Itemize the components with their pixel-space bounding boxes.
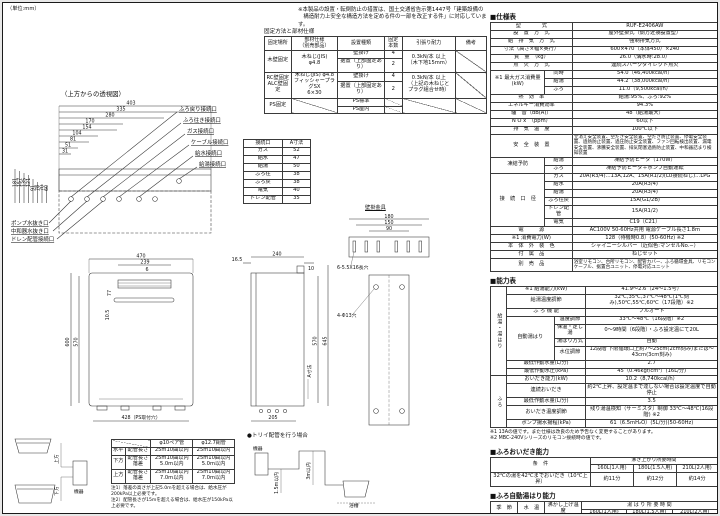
oidaki-title: ■ふろおいだき能力 — [490, 446, 718, 456]
table-cell: 最低作動水量(L/分) — [506, 398, 585, 406]
table-cell: ※1 給湯能力(kW) — [506, 286, 585, 294]
oidaki-table-grid: 条 件沸き上がり所要時間160L(1人用)180L(1.5人用)210L(2人用… — [490, 457, 718, 487]
fixing-section: 固定方法と部材仕様 固定場所部材仕様 （別売部品）設置種類固定本数引張り耐力備考… — [264, 29, 487, 114]
torii-diagram: 3m以内 1.5m以内 機器 浴槽 — [247, 441, 377, 511]
a-dimension-table-grid: 接続口A寸法ガス52給水47給湯50ふろ往38ふろ戻38電気40ドレン配管35 — [243, 139, 311, 204]
dim-label: A寸法 — [306, 364, 313, 377]
table-cell: ガス — [244, 147, 283, 155]
table-cell: 10.2（8,740kcal/h） — [586, 376, 718, 384]
table-cell: ふろ — [545, 86, 572, 94]
table-cell: φ10ペア管 — [151, 440, 193, 448]
port-label: 給湯接続口 — [199, 160, 226, 168]
table-cell: 2 — [384, 58, 402, 72]
a-dimension-table: 接続口A寸法ガス52給水47給湯50ふろ往38ふろ戻38電気40ドレン配管35 — [243, 139, 311, 204]
table-cell: 質 量 （kg） — [491, 54, 573, 62]
yuhari-table: 季 節水 温沸かし上げ温度湯 は り 所 要 時 間160L(1人用)180L(… — [490, 501, 718, 514]
table-cell: 0.3kN/本 以上 （上記の木ねじと プラグ組合せ時） — [402, 72, 455, 98]
table-cell: 電 源 — [491, 227, 573, 235]
table-cell: 熱 効 率 — [491, 94, 573, 102]
table-cell: 160L(1人用) — [581, 509, 626, 514]
drain-label: ドレン配管接続口 — [11, 235, 54, 243]
table-cell: フルオート — [586, 308, 718, 316]
table-cell: 固定場所 — [265, 37, 292, 51]
table-cell: 47 — [282, 155, 310, 163]
dim-label: 570 — [313, 336, 319, 345]
capacity-table-grid: 給湯・湯はり※1 給湯能力(kW)41.9〜2.6（24〜1.5号）給湯温度調節… — [490, 286, 718, 428]
table-cell: 600×470（本体450）×240 — [572, 46, 717, 54]
table-cell: 木ねじ(JIS) φ4.8 フィッシャープラグSX 6×30 — [291, 72, 338, 98]
table-cell: 自動湯はり — [506, 316, 554, 360]
table-cell: 給湯 — [244, 163, 283, 171]
bracket-channel — [369, 275, 409, 425]
table-cell: 2 — [384, 82, 402, 98]
front-view-drawing: 470 239 6 600 570 77 10.5 428（PS取付穴） — [59, 249, 227, 435]
table-cell: 接続口 — [244, 140, 283, 148]
table-cell — [112, 440, 151, 448]
table-cell — [455, 98, 486, 114]
table-cell: 45（0.46kgf/cm²）(16L/分) — [586, 368, 718, 376]
table-cell — [402, 98, 455, 114]
torii-device-label: 機器 — [253, 445, 263, 452]
spec-title: ■仕様表 — [490, 11, 718, 21]
dim-label: 150 — [384, 220, 393, 226]
table-cell: 自動 — [586, 338, 718, 346]
table-cell: 最低作動水圧(kPa) — [506, 368, 585, 376]
table-cell: 40 — [282, 187, 310, 195]
table-cell: 騒 音（dB(A)） — [491, 110, 573, 118]
torii-dim-2: 1.5m以内 — [273, 472, 280, 494]
table-cell: 保温・足し湯 — [554, 324, 586, 338]
table-cell: 据置（上部固定あり） — [338, 82, 385, 98]
table-cell: 33℃〜48℃（16段階）※2 — [586, 316, 718, 324]
table-cell: 本 体 外 装 色 — [491, 243, 573, 251]
table-cell: ふろ往 — [244, 171, 283, 179]
table-cell: RC壁固定 ALC壁固定 — [265, 72, 292, 98]
table-cell: 32℃の湯を42℃までおいだき（10℃上昇） — [491, 473, 591, 487]
table-cell: 木ねじ(JIS) φ4.8 — [291, 50, 338, 72]
table-cell: 160L(1人用) — [590, 465, 633, 473]
table-cell: 給湯:95%、ふろ:92% — [572, 94, 717, 102]
footnote-2: ※2 MBC-240Vシリーズのリモコン接続時の値です。 — [490, 436, 718, 442]
table-cell: ふろ — [545, 165, 572, 173]
table-cell: 約11分 — [590, 473, 633, 487]
table-cell: 26.0（満水時:28.0） — [572, 54, 717, 62]
drain-label: ポンプ水抜き口 — [11, 219, 49, 227]
table-cell: 連続おいだき — [506, 384, 585, 398]
pipe-note-1: 注1）落差の高さが上記5.0mを超える場合は、給水圧が200kPa以上必要です。 — [111, 486, 235, 498]
dim-label: 154 — [82, 125, 91, 131]
table-cell: 25m10曲以内 5.0m以内 — [193, 455, 235, 469]
table-cell: 25m10曲以内 7.0m以内 — [193, 469, 235, 483]
table-cell: 上方 — [112, 469, 126, 483]
table-cell: 湯 は り 所 要 時 間 — [581, 502, 717, 510]
table-cell: 条 件 — [491, 457, 591, 473]
table-cell: 210L(2人用) — [677, 465, 718, 473]
pipe-length-table: φ10ペア管φ12.7銅管水平配管長さ25m10曲以内25m10曲以内下方配管長… — [111, 439, 235, 484]
table-cell: 連続スパークダイレクト点火 — [572, 62, 717, 70]
table-cell: 沸き上がり所要時間 — [590, 457, 717, 465]
table-cell: 湯はり方式 — [554, 338, 586, 346]
torii-dim-1: 3m以内 — [305, 462, 312, 480]
dim-label: 10.5 — [105, 310, 111, 321]
table-cell: 設 置 方 式 — [491, 30, 573, 38]
table-cell: 排 気 温 度 — [491, 126, 573, 134]
table-cell: 給湯 — [545, 78, 572, 86]
table-cell: 20A(R3/4) — [572, 181, 717, 189]
table-cell: ふろ往戻 — [545, 197, 572, 205]
table-cell: 25m10曲以内 5.0m以内 — [151, 455, 193, 469]
table-cell: ※1 最大ガス消費量 (kW) — [491, 70, 545, 94]
bath-diagram: 上方 下方 機器 — [11, 433, 107, 511]
dim-label: 403 — [126, 101, 135, 107]
dim-label: 51 — [65, 143, 71, 149]
dim-label: 31 — [62, 149, 68, 155]
dim-label: 170 — [85, 119, 94, 125]
table-cell: 下方 — [112, 455, 126, 469]
table-cell: 引張り耐力 — [402, 37, 455, 51]
fixing-title: 固定方法と部材仕様 — [264, 29, 487, 36]
table-cell: ふろ — [491, 376, 507, 428]
table-cell: 木壁固定 — [265, 50, 292, 72]
fixing-table: 固定場所部材仕様 （別売部品）設置種類固定本数引張り耐力備考木壁固定木ねじ(JI… — [264, 36, 487, 114]
table-cell: 配管長さ — [125, 447, 151, 455]
table-cell: 52 — [282, 147, 310, 155]
table-cell: 50 — [282, 163, 310, 171]
a-dimension-section: 接続口A寸法ガス52給水47給湯50ふろ往38ふろ戻38電気40ドレン配管35 — [243, 139, 311, 204]
dim-label: 570 — [74, 337, 80, 346]
table-cell: 固定本数 — [384, 37, 402, 51]
table-cell: 4 — [384, 50, 402, 58]
table-cell — [455, 72, 486, 98]
table-cell: 水平 — [112, 447, 126, 455]
dim-label: 335 — [116, 107, 125, 113]
table-cell: 同時 — [545, 70, 572, 78]
table-cell: 約14分 — [677, 473, 718, 487]
upper-tub — [15, 439, 51, 453]
table-cell: 電気 — [545, 219, 572, 227]
dim-label: 77 — [107, 290, 113, 296]
port-label: ふろ往き接続口 — [183, 116, 221, 124]
dim-label: 428（PS取付穴） — [121, 414, 160, 421]
yuhari-table-grid: 季 節水 温沸かし上げ温度湯 は り 所 要 時 間160L(1人用)180L(… — [490, 501, 718, 514]
table-cell: C19（C21） — [572, 219, 717, 227]
table-cell: おいだき能力(kW) — [506, 376, 585, 384]
drain-leader-lines — [49, 201, 103, 239]
table-cell: ガス — [545, 173, 572, 181]
table-cell: 設置種類 — [338, 37, 385, 51]
bath-down-label: 下方 — [53, 486, 60, 496]
table-cell: 給湯温度調節 — [506, 294, 585, 308]
slot-label: 6-5.5X16長穴 — [337, 264, 369, 271]
table-cell: 給水 — [244, 155, 283, 163]
table-cell: 0〜9時間（6段階）・ふろ設定温にて20L — [586, 324, 718, 338]
table-cell: 点 火 方 式 — [491, 62, 573, 70]
table-cell: 残り湯温検知（サーミスタ）制御 33℃〜48℃(16段階) ※2 — [586, 406, 718, 420]
dim-label: 10 — [308, 266, 314, 272]
table-cell: N O x （ppm） — [491, 118, 573, 126]
table-cell: 60以下 — [572, 118, 717, 126]
table-cell: 立消え安全装置、空だき安全装置、空だき防止装置、停電安全装置、過熱防止装置、過圧… — [572, 134, 717, 157]
table-cell: 壁掛け — [338, 72, 385, 81]
table-cell: RUF-E2406AW — [572, 23, 717, 31]
spec-panel: ■仕様表 型 式RUF-E2406AW設 置 方 式屋外壁掛式（側方近接設置型）… — [490, 8, 718, 509]
top-view-title: （上方からの透視図） — [61, 89, 125, 98]
slot-leader — [351, 252, 354, 265]
front-body — [89, 273, 193, 410]
table-cell: 94.3% — [572, 102, 717, 110]
table-cell: ドレン配管 — [244, 195, 283, 203]
table-cell: 11.0（9,500kcal/h） — [572, 86, 717, 94]
table-cell: ポンプ揚水揚程(kPa) — [506, 420, 585, 428]
pipe-length-table-grid: φ10ペア管φ12.7銅管水平配管長さ25m10曲以内25m10曲以内下方配管長… — [111, 439, 235, 484]
table-cell: 128（待機時0.8）(50-60Hz) ※2 — [572, 235, 717, 243]
bracket-title: 壁掛金具 — [365, 205, 386, 212]
table-cell: 35 — [282, 195, 310, 203]
dim-label: 645 — [323, 336, 329, 345]
table-cell: 54.0（46,400kcal/h） — [572, 70, 717, 78]
table-cell: 約12分 — [634, 473, 677, 487]
unit-note: （単位:mm） — [7, 6, 40, 13]
table-cell: 最低作動水量(L/分) — [506, 360, 585, 368]
table-cell: 別 売 品 — [491, 259, 573, 272]
table-cell: 部材仕様 （別売部品） — [291, 37, 338, 51]
table-cell: 給湯 — [545, 189, 572, 197]
dim-label: 16.5 — [232, 257, 243, 263]
dim-label: 205 — [268, 415, 277, 421]
table-cell: AC100V 50-60Hz共用 電源ケーブル長さ1.8m — [572, 227, 717, 235]
dim-label: 60 — [44, 185, 50, 191]
table-cell: 2.7 — [586, 360, 718, 368]
compliance-line-2: 構造耐力上安全な構造方法を定める件の一部を改正する件」に対応しています。 — [298, 14, 488, 29]
dim-label: 600 — [65, 337, 71, 346]
dim-label: 81 — [70, 137, 76, 143]
table-cell: 配管長さ 落差 — [125, 455, 151, 469]
table-cell: 型 式 — [491, 23, 573, 31]
port-label: 給水接続口 — [195, 149, 222, 157]
table-cell: 38 — [282, 171, 310, 179]
table-cell: 15A(R1/2) — [572, 205, 717, 219]
table-cell: シャイニーシルバー（近似色:マンセルNo.−） — [572, 243, 717, 251]
torii-pipe — [255, 451, 369, 497]
bracket-drawing: 180 150 90 6-5.5X16長穴 4-Φ13穴 — [335, 213, 443, 435]
capacity-title: ■能力表 — [490, 275, 718, 285]
spec-table-grid: 型 式RUF-E2406AW設 置 方 式屋外壁掛式（側方近接設置型）給 排 気… — [490, 22, 718, 272]
table-cell: 180L(1.5人用) — [627, 509, 672, 514]
dim-label: 239 — [140, 260, 149, 266]
dim-label: 104 — [72, 131, 81, 137]
dim-label: 470 — [136, 254, 145, 260]
table-cell: ねじセット — [572, 251, 717, 259]
table-cell: 0.3kN/本 以上 （木下地15mm） — [402, 50, 455, 72]
table-cell: 約2℃上昇、設定温まで達しない場合は設定温度で自動停止 — [586, 384, 718, 398]
table-cell: 寸法（高さ×幅×奥行） — [491, 46, 573, 54]
table-cell: 12段階 下限循環口上約7〜25cm(2cm刻み)または〜43cm(3cm刻み) — [586, 346, 718, 360]
drain-label: 中和器水抜き口 — [11, 227, 49, 235]
table-cell: ふ ろ 機 能 — [506, 308, 585, 316]
table-cell: 水 温 — [518, 502, 545, 514]
table-cell: 20A(R3/4)…13A,12A、15A(R1/2)(LU接続ねじ)…LPG — [572, 173, 717, 181]
front-view-dim-lines — [71, 259, 193, 421]
drawing-sheet: （単位:mm） ※本製品の設置・転倒防止の措置は、国土交通省告示第1447号「建… — [2, 2, 718, 514]
side-body — [251, 266, 308, 413]
table-cell: 61（6.5mH₂O）(5L/分)(50-60Hz) — [586, 420, 718, 428]
table-cell: 210L(2人用) — [672, 509, 717, 514]
table-cell — [384, 98, 402, 106]
table-cell: 浴室リモコン、台所リモコン、配管カバー、ふろ循環金具、リモコンケーブル、据置台ユ… — [572, 259, 717, 272]
port-label: ケーブル接続口 — [191, 138, 228, 146]
dim-label: 6 — [145, 267, 148, 273]
table-cell: 接 続 口 径 — [491, 173, 545, 227]
table-cell: 据置（上部固定あり） — [338, 58, 385, 72]
table-cell: 凍結予防ヒータ＋ポンプ自動運転 — [572, 165, 717, 173]
table-cell: 凍結予防 — [491, 157, 545, 173]
table-cell — [291, 98, 338, 114]
table-cell: 3.5 — [586, 398, 718, 406]
table-cell: ドレン配管 — [545, 205, 572, 219]
table-cell: φ12.7銅管 — [193, 440, 235, 448]
dim-label: 240 — [272, 252, 281, 258]
table-cell: 付 属 品 — [491, 251, 573, 259]
table-cell: 季 節 — [491, 502, 518, 514]
side-view-drawing: 16.5 240 10 570 645 A寸法 205 — [225, 249, 339, 435]
page: { "unit_note": "（単位:mm）", "compliance": … — [0, 0, 720, 516]
capacity-table: 給湯・湯はり※1 給湯能力(kW)41.9〜2.6（24〜1.5号）給湯温度調節… — [490, 286, 718, 428]
bath-up-label: 上方 — [53, 454, 60, 464]
table-cell: おいだき温度調節 — [506, 406, 585, 420]
lower-tub — [15, 485, 55, 503]
table-cell: 電気 — [244, 187, 283, 195]
pipe-note-2: 注2）配管長さが15mを超える場合は、給水圧が150kPa以上必要です。 — [111, 498, 235, 510]
table-cell: 25m10曲以内 — [151, 447, 193, 455]
table-cell: 備考 — [455, 37, 486, 51]
table-cell: 180L(1.5人用) — [634, 465, 677, 473]
table-cell: PS標準 — [338, 98, 385, 106]
bracket-plate — [349, 237, 429, 257]
table-cell: 強制排気方式 — [572, 38, 717, 46]
table-cell: 25m10曲以内 7.0m以内 — [151, 469, 193, 483]
connection-ports — [69, 179, 182, 202]
table-cell: エネルギー消費効率 — [491, 102, 573, 110]
table-cell: 15A(G1/2B) — [572, 197, 717, 205]
unit-top-outline — [59, 169, 211, 233]
table-cell: 給湯・湯はり — [491, 286, 507, 376]
dim-label: 180 — [384, 214, 393, 220]
bath-device-label: 機器 — [74, 488, 84, 495]
table-cell: 48（給湯最大） — [572, 110, 717, 118]
compliance-note: ※本製品の設置・転倒防止の措置は、国土交通省告示第1447号「建築設備の 構造耐… — [298, 7, 488, 29]
table-cell: 32℃,35℃,37℃〜48℃(1℃刻み),50℃,55℃,60℃（17段階）※… — [586, 294, 718, 308]
table-cell: 給湯 — [545, 157, 572, 165]
table-cell: 25m10曲以内 — [193, 447, 235, 455]
table-cell — [455, 50, 486, 72]
table-cell: ふろ戻 — [244, 179, 283, 187]
table-cell: 配管長さ 落差 — [125, 469, 151, 483]
table-cell: ※1 消費電力(W) — [491, 235, 573, 243]
table-cell: PS屋内 — [338, 106, 385, 114]
table-cell: 41.9〜2.6（24〜1.5号） — [586, 286, 718, 294]
table-cell: 給水 — [545, 181, 572, 189]
table-cell: 屋外壁掛式（側方近接設置型） — [572, 30, 717, 38]
yuhari-title: ■ふろ自動湯はり能力 — [490, 490, 718, 500]
table-cell: PS固定 — [265, 98, 292, 114]
table-cell: 20A(R3/4) — [572, 189, 717, 197]
table-cell: A寸法 — [282, 140, 310, 148]
table-cell: 凍結予防ヒータ（170W） — [572, 157, 717, 165]
dim-label: 90 — [386, 226, 392, 232]
dim-label: 280 — [105, 113, 114, 119]
spec-table: 型 式RUF-E2406AW設 置 方 式屋外壁掛式（側方近接設置型）給 排 気… — [490, 22, 718, 272]
fixing-table-grid: 固定場所部材仕様 （別売部品）設置種類固定本数引張り耐力備考木壁固定木ねじ(JI… — [264, 36, 487, 114]
table-cell: 4 — [384, 72, 402, 81]
top-view-drawing: 403 335 280 170 154 104 81 51 31 ふろ戻り接続口… — [9, 99, 261, 251]
port-label: ふろ戻り接続口 — [179, 105, 217, 113]
table-cell: 安 全 装 置 — [491, 134, 573, 157]
table-cell: 温度調節 — [554, 316, 586, 324]
port-label: ガス接続口 — [187, 127, 214, 135]
table-cell: 壁掛け — [338, 50, 385, 58]
table-cell: 44.2（38,000kcal/h） — [572, 78, 717, 86]
table-cell: 沸かし上げ温度 — [545, 502, 581, 514]
table-cell: 水位調節 — [554, 346, 586, 360]
table-cell: 38 — [282, 179, 310, 187]
oidaki-table: 条 件沸き上がり所要時間160L(1人用)180L(1.5人用)210L(2人用… — [490, 457, 718, 487]
hole-leader — [353, 289, 374, 314]
torii-title: ●トリイ配管を行う場合 — [247, 433, 308, 440]
pipe-length-section: φ10ペア管φ12.7銅管水平配管長さ25m10曲以内25m10曲以内下方配管長… — [111, 439, 235, 509]
table-cell — [384, 106, 402, 114]
table-cell: 給 排 気 方 式 — [491, 38, 573, 46]
table-cell: 100℃以下 — [572, 126, 717, 134]
